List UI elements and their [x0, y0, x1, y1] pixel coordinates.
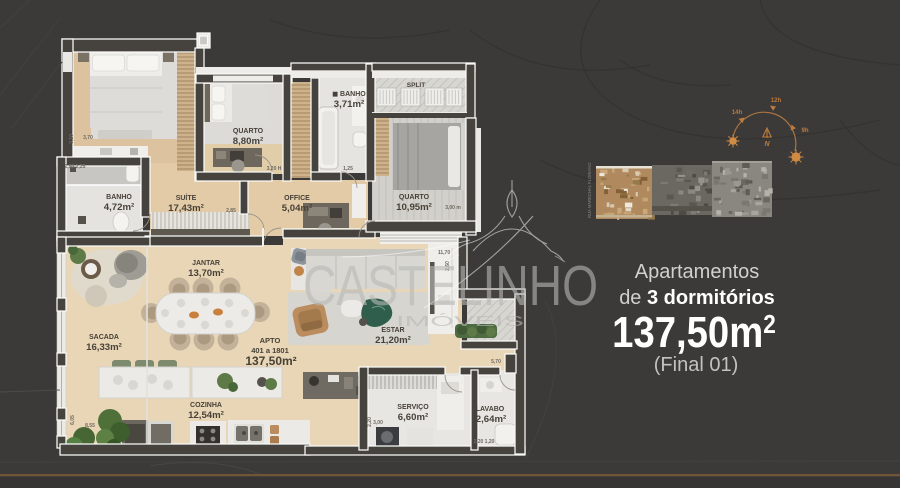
svg-text:2,85: 2,85 — [226, 208, 236, 214]
svg-text:3,20 H: 3,20 H — [267, 166, 282, 172]
svg-text:6,60m²: 6,60m² — [398, 412, 428, 423]
svg-text:2,20 1,20: 2,20 1,20 — [474, 439, 495, 445]
svg-text:8,80m²: 8,80m² — [233, 136, 263, 147]
svg-text:12,54m²: 12,54m² — [188, 410, 224, 421]
svg-text:5,70: 5,70 — [491, 359, 501, 365]
svg-text:2,20: 2,20 — [367, 417, 373, 427]
svg-text:16,33m²: 16,33m² — [86, 342, 122, 353]
svg-text:Apartamentos: Apartamentos — [635, 261, 760, 283]
svg-text:(Final 01): (Final 01) — [654, 354, 738, 376]
svg-text:3,00 m: 3,00 m — [445, 205, 461, 211]
svg-text:3,10: 3,10 — [69, 134, 75, 144]
svg-text:BANHO: BANHO — [106, 194, 132, 201]
svg-text:6,05: 6,05 — [70, 415, 76, 425]
svg-text:14h: 14h — [732, 110, 743, 116]
svg-text:3,70: 3,70 — [83, 135, 93, 141]
svg-text:JANTAR: JANTAR — [192, 260, 220, 267]
svg-text:137,50m²: 137,50m² — [245, 354, 296, 368]
svg-text:QUARTO: QUARTO — [399, 194, 430, 201]
svg-text:13,70m²: 13,70m² — [188, 268, 224, 279]
svg-text:3,71m²: 3,71m² — [334, 99, 364, 110]
svg-text:1,25: 1,25 — [343, 166, 353, 172]
svg-text:5,04m²: 5,04m² — [282, 203, 312, 214]
svg-text:3,00: 3,00 — [373, 420, 383, 426]
svg-text:8,55: 8,55 — [85, 423, 95, 429]
svg-text:LAVABO: LAVABO — [476, 406, 505, 413]
svg-text:17,43m²: 17,43m² — [168, 203, 204, 214]
svg-text:10,95m²: 10,95m² — [396, 202, 432, 213]
svg-text:IMÓVEIS: IMÓVEIS — [396, 313, 524, 330]
svg-text:2,64m²: 2,64m² — [476, 414, 506, 425]
svg-text:SERVIÇO: SERVIÇO — [397, 404, 429, 411]
svg-text:2,50 2,25: 2,50 2,25 — [65, 164, 86, 170]
svg-text:137,50m2: 137,50m2 — [612, 308, 776, 357]
svg-text:COZINHA: COZINHA — [190, 402, 222, 409]
svg-text:4,72m²: 4,72m² — [104, 202, 134, 213]
svg-text:SPLIT: SPLIT — [407, 82, 425, 89]
svg-text:QUARTO: QUARTO — [233, 128, 264, 135]
svg-text:12h: 12h — [771, 98, 782, 104]
svg-text:APTO: APTO — [260, 336, 281, 345]
svg-text:21,20m²: 21,20m² — [375, 335, 411, 346]
svg-text:9h: 9h — [801, 128, 808, 134]
svg-text:◼ BANHO: ◼ BANHO — [332, 91, 366, 98]
svg-text:de 3 dormitórios: de 3 dormitórios — [619, 287, 775, 309]
svg-text:RUA MARECHAL FLORIANO: RUA MARECHAL FLORIANO — [587, 162, 592, 218]
svg-text:SUÍTE: SUÍTE — [176, 193, 197, 202]
svg-text:SACADA: SACADA — [89, 334, 119, 341]
svg-text:OFFICE: OFFICE — [284, 195, 310, 202]
svg-text:CASTELINHO: CASTELINHO — [303, 254, 598, 318]
